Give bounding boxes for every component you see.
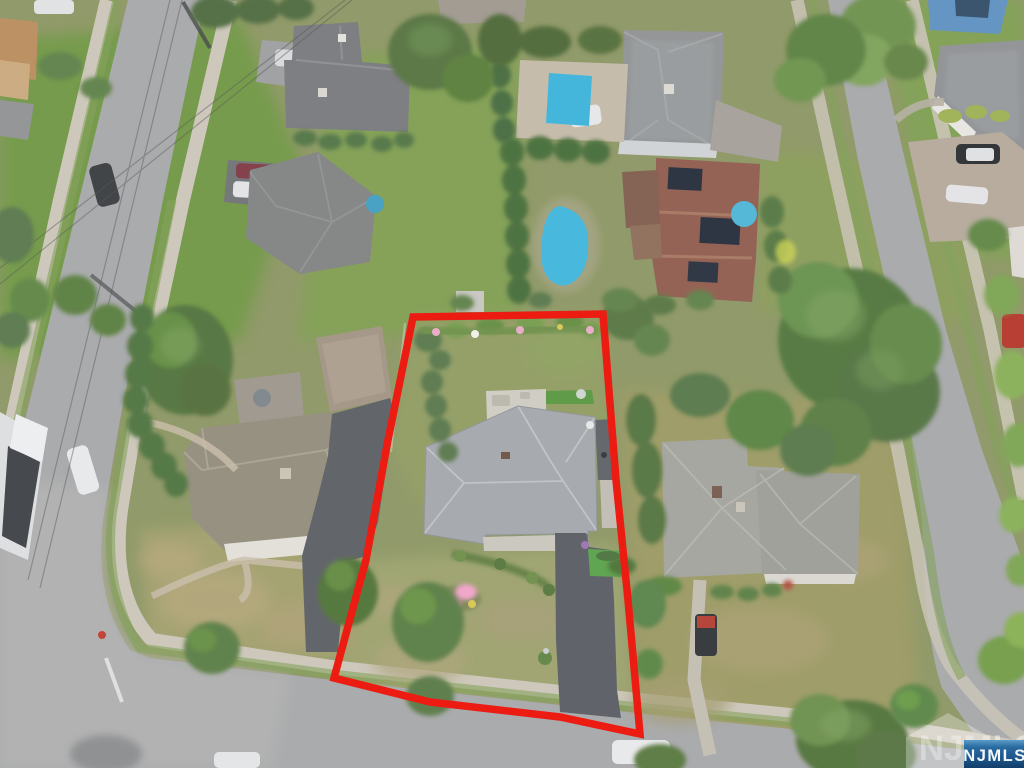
svg-text:NJMLS: NJMLS (963, 747, 1024, 765)
